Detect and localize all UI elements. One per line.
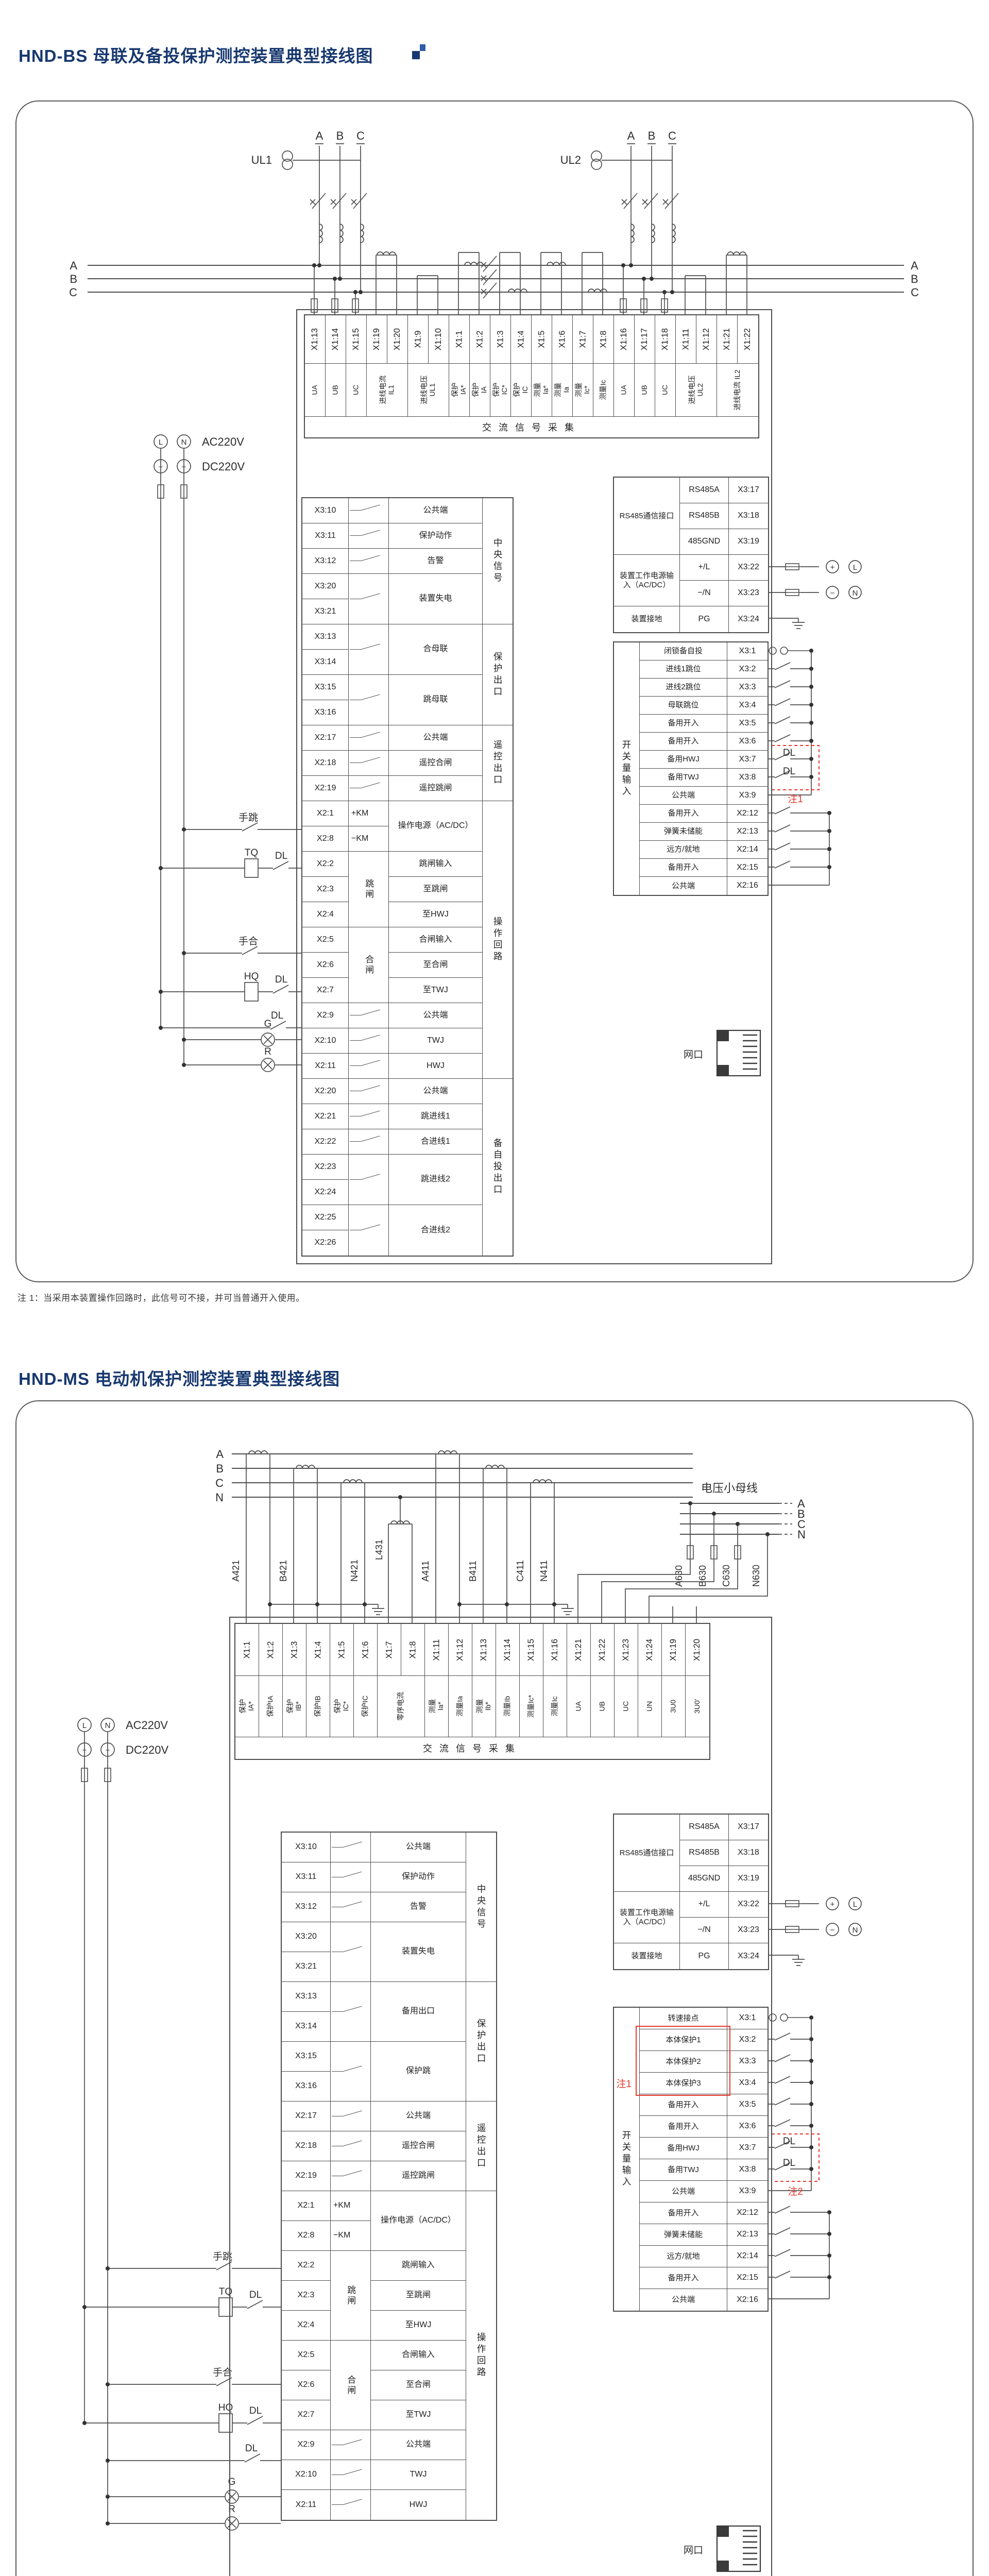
terminal-id-cell: X3:16: [302, 700, 348, 725]
binary-input-contacts: DL DL 注1: [767, 647, 831, 885]
input-label-cell: 备用开入: [640, 733, 727, 751]
contact-symbol: [349, 1054, 388, 1079]
wire-c630: C630: [721, 1565, 731, 1587]
signal-label-cell: 至跳闸: [389, 877, 482, 902]
contact-symbol: [349, 776, 388, 801]
terminal-label-cell: 测量Ia*: [532, 364, 552, 416]
l-terminal: L: [159, 438, 163, 447]
input-label-cell: 公共端: [640, 877, 727, 895]
n-terminal: N: [105, 1721, 111, 1730]
contact-symbol: [349, 1155, 388, 1205]
contact-symbol: [349, 498, 388, 523]
terminal-label-cell: 测量Ia: [449, 1676, 472, 1737]
terminal-id-cell: X1:12: [449, 1624, 472, 1675]
signal-label-cell: 跳进线1: [389, 1104, 482, 1129]
d1-io-label-col: 闭锁备自投进线1跳位进线2跳位母联跳位备用开入备用开入备用HWJ备用TWJ公共端…: [640, 642, 727, 895]
group-label-cell: 操作回路: [483, 801, 513, 1079]
l-terminal: L: [82, 1721, 87, 1730]
terminal-id-cell: X1:4: [306, 1624, 330, 1675]
contact-symbol: [349, 751, 388, 776]
terminal-id-cell: X3:9: [727, 2181, 768, 2202]
terminal-label-cell: UB: [635, 364, 655, 416]
hand-close-label: 手合: [238, 936, 258, 947]
terminal-label-cell: 测量Ic: [543, 1676, 567, 1737]
terminal-label-cell: 测量Ic*: [573, 364, 593, 416]
terminal-id-cell: X3:16: [282, 2072, 330, 2102]
terminal-label-cell: 测量Ib*: [472, 1676, 496, 1737]
power-plus-terminal: +: [830, 563, 835, 572]
terminal-label-cell: 保护IC: [354, 1676, 378, 1737]
signal-label-cell: TWJ: [389, 1028, 482, 1054]
terminal-id-cell: X3:10: [282, 1833, 330, 1862]
terminal-label-cell: 保护IB*: [283, 1676, 306, 1737]
group-label-cell: RS485通信接口: [614, 478, 679, 555]
d2-comm-id-col: X3:17X3:18X3:19X3:22X3:23X3:24: [729, 1815, 768, 1969]
signal-name-cell: RS485B: [680, 503, 728, 529]
terminal-label-cell: 进线电压 UL2: [676, 364, 717, 416]
terminal-label-cell: UN: [638, 1676, 662, 1737]
terminal-id-cell: X1:13: [472, 1624, 496, 1675]
terminal-id-cell: X2:16: [727, 2289, 768, 2311]
signal-label-cell: 保护动作: [371, 1862, 466, 1892]
contact-symbol: [349, 549, 388, 574]
group-label-cell: 开关量输入: [614, 642, 639, 895]
power-minus-terminal: −: [830, 1926, 835, 1935]
contact-symbol: [331, 1922, 370, 1982]
signal-name-cell: RS485A: [680, 1815, 728, 1840]
terminal-label-cell: 测量Ia*: [425, 1676, 449, 1737]
section1-title: HND-BS 母联及备投保护测控装置典型接线图: [19, 42, 373, 67]
signal-name-cell: −/N: [680, 1918, 728, 1943]
terminal-id-cell: X2:1: [302, 801, 348, 826]
terminal-label-cell: 保护IA*: [449, 364, 470, 416]
dl-hwj-label: DL: [783, 2136, 795, 2147]
signal-label-cell: 遥控跳闸: [371, 2161, 466, 2191]
signal-label-cell: 公共端: [389, 725, 482, 751]
terminal-id-cell: X3:24: [729, 606, 768, 632]
contact-symbol: 合闸: [349, 927, 388, 1003]
ul1-phase-c: C: [356, 129, 365, 142]
signal-label-cell: 公共端: [371, 1833, 466, 1862]
terminal-label-cell: 3U0: [662, 1676, 686, 1737]
group-label-cell: 备自投出口: [483, 1079, 513, 1256]
input-label-cell: 备用开入: [640, 2202, 727, 2224]
signal-label-cell: 跳进线2: [389, 1155, 482, 1205]
ul1-phase-a: A: [316, 129, 323, 142]
signal-label-cell: 合进线1: [389, 1129, 482, 1155]
terminal-label-cell: 进线电流 IL2: [717, 364, 758, 416]
terminal-id-cell: X1:15: [346, 315, 367, 363]
d1-ac-signal-strip: X1:13X1:14X1:15X1:19X1:20X1:9X1:10X1:1X1…: [304, 314, 759, 438]
contact-symbol: [349, 1129, 388, 1155]
bus-a-label-left: A: [70, 259, 77, 272]
signal-label-cell: 跳母联: [389, 675, 482, 725]
terminal-id-cell: X1:6: [552, 315, 573, 363]
terminal-label-cell: UA: [567, 1676, 591, 1737]
signal-label-cell: 操作电源（AC/DC）: [371, 2191, 466, 2251]
input-label-cell: 转速接点: [640, 2008, 727, 2029]
contact-symbol: [331, 2102, 370, 2131]
d1-out-contact-col: +KM−KM跳闸合闸: [349, 498, 389, 1256]
d2-io-label-col: 转速接点本体保护1本体保护2本体保护3备用开入备用开入备用HWJ备用TWJ公共端…: [640, 2008, 727, 2311]
device-power-wiring: + L − N: [767, 561, 861, 629]
terminal-id-cell: X2:25: [302, 1205, 348, 1230]
signal-name-cell: 485GND: [680, 529, 728, 555]
terminal-id-cell: X1:19: [367, 315, 387, 363]
signal-label-cell: 遥控合闸: [389, 751, 482, 776]
d2-output-block: X3:10X3:11X3:12X3:20X3:21X3:13X3:14X3:15…: [281, 1832, 497, 2521]
d1-binary-input-table: 开关量输入 闭锁备自投进线1跳位进线2跳位母联跳位备用开入备用开入备用HWJ备用…: [613, 641, 769, 896]
terminal-id-cell: X3:20: [282, 1922, 330, 1952]
signal-label-cell: 遥控跳闸: [389, 776, 482, 801]
contact-symbol: [331, 2460, 370, 2490]
terminal-id-cell: X1:7: [573, 315, 593, 363]
wire-n630: N630: [751, 1565, 761, 1587]
signal-label-cell: 合进线2: [389, 1205, 482, 1256]
d2-out-group-col: 中央信号保护出口遥控出口操作回路: [466, 1833, 496, 2520]
terminal-id-cell: X1:4: [511, 315, 532, 363]
power-l-terminal: L: [853, 1900, 857, 1909]
voltage-mini-bus: 电压小母线 A B C N: [578, 1482, 806, 1623]
signal-label-cell: 至合闸: [371, 2370, 466, 2400]
group-label-cell: 装置工作电源输入（AC/DC）: [614, 1892, 679, 1943]
d2-strip-group-cell: 交流信号采集: [235, 1737, 709, 1759]
power-minus-terminal: −: [830, 589, 835, 598]
terminal-id-cell: X3:14: [302, 650, 348, 675]
terminal-id-cell: X2:17: [302, 725, 348, 751]
contact-symbol: 合闸: [331, 2341, 370, 2430]
terminal-id-cell: X3:6: [727, 733, 768, 751]
terminal-id-cell: X1:9: [408, 315, 429, 363]
d2-binary-input-table: 开关量输入 转速接点本体保护1本体保护2本体保护3备用开入备用开入备用HWJ备用…: [613, 2007, 769, 2312]
terminal-id-cell: X2:5: [302, 927, 348, 953]
dl-contact3-label: DL: [271, 1010, 283, 1021]
input-label-cell: 本体保护1: [640, 2029, 727, 2051]
signal-label-cell: 跳闸输入: [371, 2251, 466, 2281]
terminal-id-cell: X1:17: [635, 315, 655, 363]
group-label-cell: 保护出口: [483, 624, 513, 725]
terminal-id-cell: X2:15: [727, 2267, 768, 2289]
contact-symbol: [349, 1104, 388, 1129]
terminal-id-cell: X1:23: [615, 1624, 638, 1675]
contact-symbol: +KM: [349, 801, 388, 826]
bus-c-label-left: C: [69, 286, 77, 299]
signal-label-cell: 操作电源（AC/DC）: [389, 801, 482, 852]
signal-label-cell: 至TWJ: [371, 2400, 466, 2430]
terminal-id-cell: X3:6: [727, 2116, 768, 2138]
terminal-id-cell: X3:17: [729, 478, 768, 503]
terminal-id-cell: X2:15: [727, 859, 768, 877]
input-label-cell: 远方/就地: [640, 841, 727, 859]
title-decoration-icon: [412, 44, 428, 60]
d1-strip-label-row: UAUBUC进线电流 IL1进线电压 UL1保护IA*保护IA保护IC*保护IC…: [305, 364, 758, 417]
signal-label-cell: 至HWJ: [389, 902, 482, 927]
terminal-id-cell: X2:1: [282, 2191, 330, 2221]
terminal-id-cell: X1:15: [520, 1624, 543, 1675]
device-power-wiring: + L − N: [767, 1897, 861, 1965]
d2-ac-signal-strip: X1:1X1:2X1:3X1:4X1:5X1:6X1:7X1:8X1:11X1:…: [234, 1623, 710, 1760]
terminal-id-cell: X2:8: [282, 2221, 330, 2251]
n-terminal: N: [181, 438, 187, 447]
d1-out-id-col: X3:10X3:11X3:12X3:20X3:21X3:13X3:14X3:15…: [302, 498, 349, 1256]
terminal-label-cell: 测量Ib: [496, 1676, 520, 1737]
input-label-cell: 进线2跳位: [640, 679, 727, 697]
terminal-id-cell: X3:18: [729, 503, 768, 529]
vbus-n-label: N: [797, 1528, 806, 1541]
contact-symbol: −KM: [331, 2221, 370, 2251]
signal-name-cell: +/L: [680, 1892, 728, 1918]
terminal-id-cell: X1:11: [676, 315, 696, 363]
terminal-id-cell: X2:2: [302, 852, 348, 877]
power-supply-terminals: L N AC220V + − DC220V: [78, 1718, 168, 2523]
d2-comm-name-col: RS485ARS485B485GND+/L−/NPG: [680, 1815, 729, 1969]
terminal-label-cell: 测量Ic: [593, 364, 614, 416]
contact-symbol: [349, 1003, 388, 1028]
terminal-id-cell: X2:4: [302, 902, 348, 927]
terminal-id-cell: X1:16: [614, 315, 635, 363]
terminal-id-cell: X3:11: [302, 523, 348, 549]
terminal-id-cell: X2:26: [302, 1230, 348, 1256]
terminal-id-cell: X2:19: [282, 2161, 330, 2191]
terminal-id-cell: X3:12: [282, 1892, 330, 1922]
terminal-id-cell: X3:11: [282, 1862, 330, 1892]
contact-symbol: 跳闸: [331, 2251, 370, 2341]
terminal-id-cell: X3:1: [727, 642, 768, 660]
terminal-id-cell: X3:20: [302, 574, 348, 599]
strip-feed-wires: [311, 252, 747, 315]
contact-symbol: −KM: [349, 826, 388, 852]
terminal-id-cell: X3:9: [727, 787, 768, 805]
signal-label-cell: 合闸输入: [371, 2341, 466, 2370]
contact-symbol: [349, 574, 388, 624]
terminal-id-cell: X3:13: [282, 1982, 330, 2012]
d1-io-group-col: 开关量输入: [614, 642, 640, 895]
dc220v-label: DC220V: [126, 1743, 168, 1756]
terminal-id-cell: X1:21: [717, 315, 738, 363]
terminal-id-cell: X3:7: [727, 751, 768, 769]
signal-label-cell: HWJ: [389, 1054, 482, 1079]
signal-name-cell: −/N: [680, 581, 728, 606]
terminal-id-cell: X2:21: [302, 1104, 348, 1129]
terminal-id-cell: X1:3: [283, 1624, 306, 1675]
power-n-terminal: N: [852, 589, 858, 598]
bus-a-label-right: A: [911, 259, 918, 272]
contact-symbol: [331, 2131, 370, 2161]
terminal-id-cell: X2:12: [727, 805, 768, 823]
hand-trip-label: 手跳: [238, 812, 258, 823]
d1-io-id-col: X3:1X3:2X3:3X3:4X3:5X3:6X3:7X3:8X3:9X2:1…: [727, 642, 768, 895]
d1-strip-id-row: X1:13X1:14X1:15X1:19X1:20X1:9X1:10X1:1X1…: [305, 315, 758, 364]
terminal-id-cell: X1:19: [662, 1624, 686, 1675]
ac-signal-group-label: 交流信号采集: [482, 420, 581, 434]
signal-label-cell: 装置失电: [389, 574, 482, 624]
terminal-id-cell: X2:3: [282, 2281, 330, 2311]
signal-name-cell: RS485B: [680, 1840, 728, 1866]
terminal-id-cell: X2:11: [302, 1054, 348, 1079]
terminal-id-cell: X2:9: [302, 1003, 348, 1028]
d2-strip-id-row: X1:1X1:2X1:3X1:4X1:5X1:6X1:7X1:8X1:11X1:…: [235, 1624, 709, 1676]
terminal-id-cell: X2:2: [282, 2251, 330, 2281]
terminal-id-cell: X1:8: [593, 315, 614, 363]
contact-symbol: [331, 1982, 370, 2042]
input-label-cell: 备用开入: [640, 805, 727, 823]
terminal-id-cell: X3:15: [282, 2042, 330, 2072]
terminal-label-cell: 进线电流 IL1: [367, 364, 408, 416]
terminal-id-cell: X1:5: [330, 1624, 354, 1675]
terminal-id-cell: X1:11: [425, 1624, 449, 1675]
wire-b630: B630: [697, 1565, 708, 1587]
input-label-cell: 备用开入: [640, 2267, 727, 2289]
signal-label-cell: 至HWJ: [371, 2311, 466, 2341]
terminal-id-cell: X1:1: [235, 1624, 259, 1675]
input-label-cell: 备用TWJ: [640, 2159, 727, 2181]
contact-symbol: [331, 1862, 370, 1892]
terminal-id-cell: X3:14: [282, 2012, 330, 2042]
contact-symbol: +KM: [331, 2191, 370, 2221]
terminal-id-cell: X3:12: [302, 549, 348, 574]
contact-symbol: [331, 2161, 370, 2191]
signal-name-cell: PG: [680, 606, 728, 632]
d1-comm-power-table: RS485通信接口装置工作电源输入（AC/DC）装置接地 RS485ARS485…: [613, 477, 769, 633]
terminal-id-cell: X1:22: [738, 315, 758, 363]
terminal-id-cell: X1:6: [354, 1624, 378, 1675]
ct-wiring: [246, 1451, 696, 1623]
group-label-cell: 装置接地: [614, 606, 679, 632]
d1-strip-group-cell: 交流信号采集: [305, 417, 758, 437]
tq-coil-label: TQ: [245, 848, 258, 858]
terminal-id-cell: X2:14: [727, 841, 768, 859]
group-label-cell: 装置接地: [614, 1943, 679, 1969]
terminal-id-cell: X1:2: [470, 315, 490, 363]
terminal-label-cell: UA: [614, 364, 635, 416]
signal-label-cell: 至跳闸: [371, 2281, 466, 2311]
group-label-cell: 保护出口: [466, 1982, 496, 2102]
terminal-label-cell: UC: [346, 364, 367, 416]
contact-symbol: [349, 624, 388, 675]
power-l-terminal: L: [853, 563, 857, 572]
terminal-label-cell: UB: [591, 1676, 615, 1737]
group-label-cell: 中央信号: [483, 498, 513, 624]
terminal-id-cell: X3:19: [729, 1866, 768, 1892]
contact-symbol: [331, 2490, 370, 2520]
terminal-id-cell: X2:18: [282, 2131, 330, 2161]
terminal-label-cell: 进线电压 UL1: [408, 364, 449, 416]
signal-name-cell: 485GND: [680, 1866, 728, 1892]
signal-label-cell: TWJ: [371, 2460, 466, 2490]
terminal-id-cell: X3:4: [727, 2073, 768, 2094]
group-label-cell: 中央信号: [466, 1833, 496, 1982]
input-label-cell: 备用TWJ: [640, 769, 727, 787]
terminal-id-cell: X2:20: [302, 1079, 348, 1104]
bus-b-label-left: B: [70, 273, 77, 285]
terminal-id-cell: X1:21: [567, 1624, 591, 1675]
binary-input-contacts: DL DL 注2: [767, 2014, 831, 2299]
dc220v-label: DC220V: [202, 460, 245, 473]
terminal-id-cell: X3:21: [302, 599, 348, 624]
terminal-id-cell: X3:18: [729, 1840, 768, 1866]
page: { "page": { "title1": "HND-BS 母联及备投保护测控装…: [0, 0, 989, 2576]
dl-twj-label: DL: [783, 766, 795, 777]
terminal-label-cell: 保护IB: [306, 1676, 330, 1737]
terminal-id-cell: X3:23: [729, 581, 768, 606]
bus-c-label-right: C: [911, 286, 919, 299]
dl-hwj-label: DL: [783, 748, 795, 758]
ul1-phase-b: B: [336, 129, 344, 142]
terminal-id-cell: X2:4: [282, 2311, 330, 2341]
d1-output-block: X3:10X3:11X3:12X3:20X3:21X3:13X3:14X3:15…: [301, 497, 514, 1257]
terminal-label-cell: 测量Ia: [552, 364, 573, 416]
phase-a-label: A: [216, 1448, 224, 1461]
terminal-id-cell: X3:24: [729, 1943, 768, 1969]
terminal-id-cell: X2:13: [727, 2224, 768, 2246]
signal-name-cell: PG: [680, 1943, 728, 1969]
input-label-cell: 弹簧未储能: [640, 823, 727, 841]
terminal-id-cell: X2:19: [302, 776, 348, 801]
terminal-id-cell: X1:14: [326, 315, 346, 363]
terminal-id-cell: X1:22: [591, 1624, 615, 1675]
contact-symbol: [331, 1892, 370, 1922]
terminal-id-cell: X3:22: [729, 555, 768, 581]
dl-contact1-label: DL: [275, 851, 287, 861]
input-label-cell: 备用开入: [640, 715, 727, 733]
terminal-id-cell: X3:4: [727, 697, 768, 715]
signal-label-cell: 公共端: [389, 1079, 482, 1104]
wire-a411: A411: [420, 1561, 431, 1582]
signal-label-cell: 保护动作: [389, 523, 482, 549]
terminal-id-cell: X3:5: [727, 2094, 768, 2116]
terminal-id-cell: X2:13: [727, 823, 768, 841]
terminal-id-cell: X3:19: [729, 529, 768, 555]
signal-label-cell: 至合闸: [389, 953, 482, 978]
contact-symbol: [349, 675, 388, 725]
terminal-label-cell: UB: [326, 364, 346, 416]
terminal-id-cell: X3:2: [727, 660, 768, 679]
ul1-voltage-transformer: UL1 A B C: [251, 129, 367, 294]
input-label-cell: 备用开入: [640, 2094, 727, 2116]
ul2-phase-c: C: [668, 129, 676, 142]
input-label-cell: 远方/就地: [640, 2246, 727, 2267]
d2-out-label-col: 公共端保护动作告警装置失电备用出口保护跳公共端遥控合闸遥控跳闸操作电源（AC/D…: [371, 1833, 466, 2520]
signal-label-cell: 公共端: [389, 1003, 482, 1028]
signal-label-cell: 告警: [371, 1892, 466, 1922]
ul2-phase-b: B: [648, 129, 656, 142]
signal-label-cell: 公共端: [371, 2430, 466, 2460]
d1-out-group-col: 中央信号保护出口遥控出口操作回路备自投出口: [483, 498, 513, 1256]
group-label-cell: 遥控出口: [483, 725, 513, 801]
terminal-id-cell: X1:16: [543, 1624, 567, 1675]
contact-symbol: [349, 725, 388, 751]
input-label-cell: 母联跳位: [640, 697, 727, 715]
terminal-id-cell: X2:6: [282, 2370, 330, 2400]
terminal-label-cell: UC: [655, 364, 676, 416]
ac-signal-group-label: 交流信号采集: [423, 1741, 522, 1755]
terminal-id-cell: X3:13: [302, 624, 348, 650]
terminal-id-cell: X2:6: [302, 953, 348, 978]
terminal-id-cell: X1:7: [378, 1624, 401, 1675]
note1-marker: 注1: [587, 2076, 632, 2090]
terminal-label-cell: UA: [305, 364, 326, 416]
d2-strip-label-row: 保护IA*保护IA保护IB*保护IB保护IC*保护IC零序电流测量Ia*测量Ia…: [235, 1676, 709, 1737]
signal-label-cell: 至TWJ: [389, 978, 482, 1003]
hq-coil-label: HQ: [244, 971, 259, 982]
contact-symbol: [331, 1833, 370, 1862]
d1-out-label-col: 公共端保护动作告警装置失电合母联跳母联公共端遥控合闸遥控跳闸操作电源（AC/DC…: [389, 498, 483, 1256]
terminal-id-cell: X3:17: [729, 1815, 768, 1840]
wire-b421: B421: [278, 1560, 288, 1582]
signal-name-cell: +/L: [680, 555, 728, 581]
contact-symbol: [331, 2042, 370, 2102]
wire-number-labels: A421 B421 N421 L431 A411 B411 C411 N411 …: [231, 1539, 761, 1587]
